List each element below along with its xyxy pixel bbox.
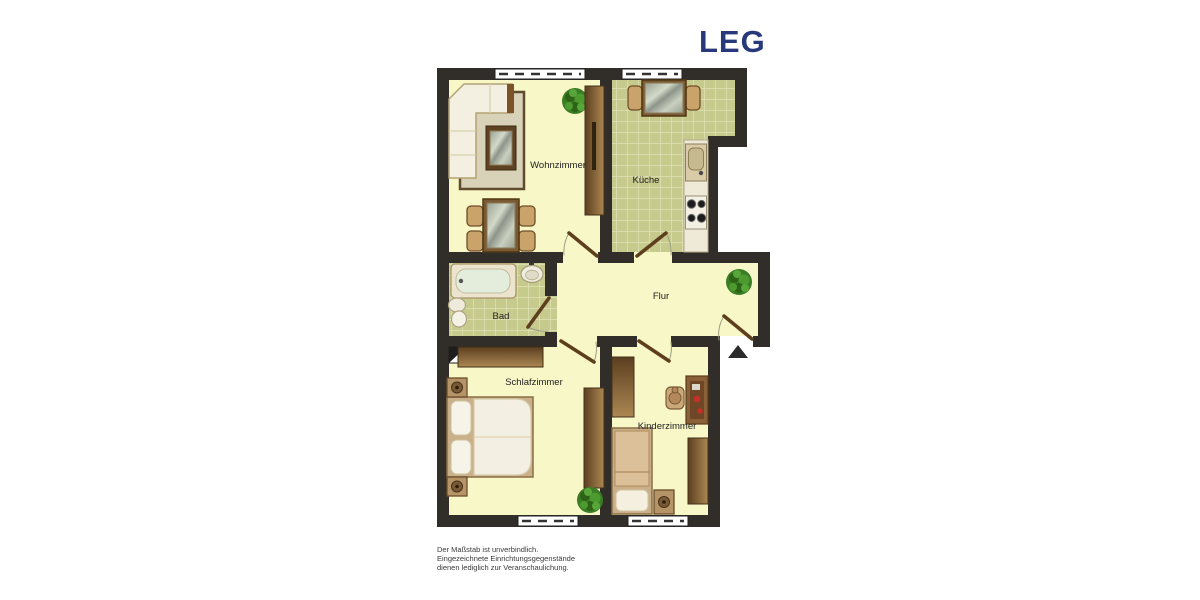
dining-chair: [467, 206, 483, 226]
child-bed: [612, 428, 652, 514]
dining-chair: [519, 231, 535, 251]
wardrobe: [458, 347, 543, 367]
sofa-side-table: [507, 84, 514, 113]
schlafzimmer-window: [518, 516, 578, 526]
schlafzimmer-label: Schlafzimmer: [505, 377, 563, 388]
kueche-label: Küche: [633, 175, 660, 186]
dining-set: [467, 199, 535, 252]
nightstand: [447, 378, 467, 397]
kitchen-chair: [686, 86, 700, 110]
plant-icon: [726, 269, 752, 295]
dining-chair: [467, 231, 483, 251]
disclaimer-line: dienen lediglich zur Veranschaulichung.: [437, 563, 575, 572]
plant-icon: [562, 88, 588, 114]
kinderzimmer-label: Kinderzimmer: [638, 421, 697, 432]
nightstand: [654, 490, 674, 514]
floor-plan-page: LEG: [0, 0, 1200, 600]
disclaimer-line: Eingezeichnete Einrichtungsgegenstände: [437, 554, 575, 563]
kitchen-counter: [684, 140, 708, 252]
kueche-window: [622, 69, 682, 79]
pillow: [616, 490, 648, 511]
double-bed: [447, 397, 533, 477]
nightstand: [447, 477, 467, 496]
kitchen-sink: [686, 144, 707, 181]
wohnzimmer-window: [495, 69, 585, 79]
wardrobe: [688, 438, 708, 504]
pillow: [451, 440, 471, 474]
pillow: [451, 401, 471, 435]
desk-chair: [666, 387, 684, 409]
coffee-table: [486, 126, 516, 170]
wohnzimmer-label: Wohnzimmer: [530, 160, 586, 171]
bad-label: Bad: [493, 311, 510, 322]
desk: [686, 376, 708, 424]
floor-plan-drawing: Wohnzimmer: [0, 0, 1200, 600]
disclaimer-text: Der Maßstab ist unverbindlich. Eingezeic…: [437, 545, 575, 572]
disclaimer-line: Der Maßstab ist unverbindlich.: [437, 545, 575, 554]
kitchen-chair: [628, 86, 642, 110]
flur-label: Flur: [653, 291, 669, 302]
dining-chair: [519, 206, 535, 226]
entrance-arrow-icon: [728, 345, 748, 358]
stove: [686, 196, 707, 229]
wardrobe: [612, 357, 634, 417]
bathtub: [451, 264, 516, 298]
plant-icon: [577, 487, 603, 513]
wardrobe: [584, 388, 604, 488]
kinderzimmer-window: [628, 516, 688, 526]
living-room-cabinet: [585, 86, 604, 215]
